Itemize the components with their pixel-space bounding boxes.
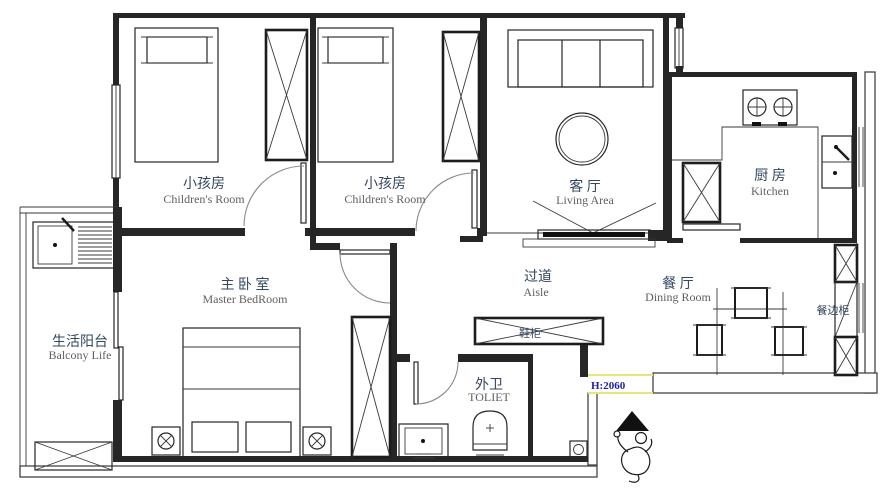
sliding-door-balcony <box>114 292 123 400</box>
double-bed-icon <box>183 328 300 457</box>
door-toilet <box>414 362 458 404</box>
tv-icon <box>523 201 656 247</box>
dining-room-label-en: Dining Room <box>645 290 711 304</box>
balcony-label-en: Balcony Life <box>49 348 112 362</box>
laundry-sink-icon <box>33 218 115 268</box>
floor-plan-drawing: H:2060 小孩房 Children's Room 小孩房 Children'… <box>0 0 891 490</box>
wardrobe-icon <box>443 32 479 161</box>
chair-icon <box>771 327 807 355</box>
children-room-2-label-en: Children's Room <box>344 192 426 206</box>
kitchen-label-en: Kitchen <box>751 184 789 198</box>
door-height-label: H:2060 <box>591 380 626 392</box>
wardrobe-icon <box>266 30 307 160</box>
nightstand-icon <box>303 427 331 455</box>
master-bedroom-label-en: Master BedRoom <box>203 292 289 306</box>
master-bedroom-label-cn: 主 卧 室 <box>221 276 270 293</box>
kitchen-label-cn: 厨 房 <box>754 168 786 184</box>
bed-icon <box>318 28 393 162</box>
floor-plan: H:2060 小孩房 Children's Room 小孩房 Children'… <box>0 0 891 490</box>
aisle-label-cn: 过道 <box>524 269 552 285</box>
aisle-label-en: Aisle <box>523 285 548 299</box>
wardrobe-icon <box>352 317 390 457</box>
sideboard-label: 餐边柜 <box>817 303 850 317</box>
nightstand-icon <box>152 427 180 455</box>
toilet-icon <box>473 411 507 455</box>
entrance-person-icon <box>614 431 652 482</box>
door-children-room-1 <box>244 163 306 226</box>
toilet-label-en: TOLIET <box>468 390 510 404</box>
children-room-2-label-cn: 小孩房 <box>364 176 406 192</box>
entrance-arrow-icon <box>616 411 649 431</box>
children-room-1-label-en: Children's Room <box>163 192 245 206</box>
living-area-label-en: Living Area <box>556 193 614 207</box>
door-master-bedroom <box>340 250 390 303</box>
round-table-icon <box>556 113 608 165</box>
stove-icon <box>743 90 797 126</box>
sofa-icon <box>508 30 653 87</box>
bed-icon <box>135 28 218 162</box>
shoe-cabinet-label: 鞋柜 <box>519 326 541 340</box>
kitchen-sink-icon <box>822 136 852 188</box>
floor-drain-icon <box>570 441 587 458</box>
children-room-1-label-cn: 小孩房 <box>183 176 225 192</box>
door-height-annotation: H:2060 <box>588 375 653 393</box>
chair-icon <box>693 325 726 355</box>
washbasin-icon <box>399 424 448 460</box>
fridge-icon <box>683 163 720 222</box>
